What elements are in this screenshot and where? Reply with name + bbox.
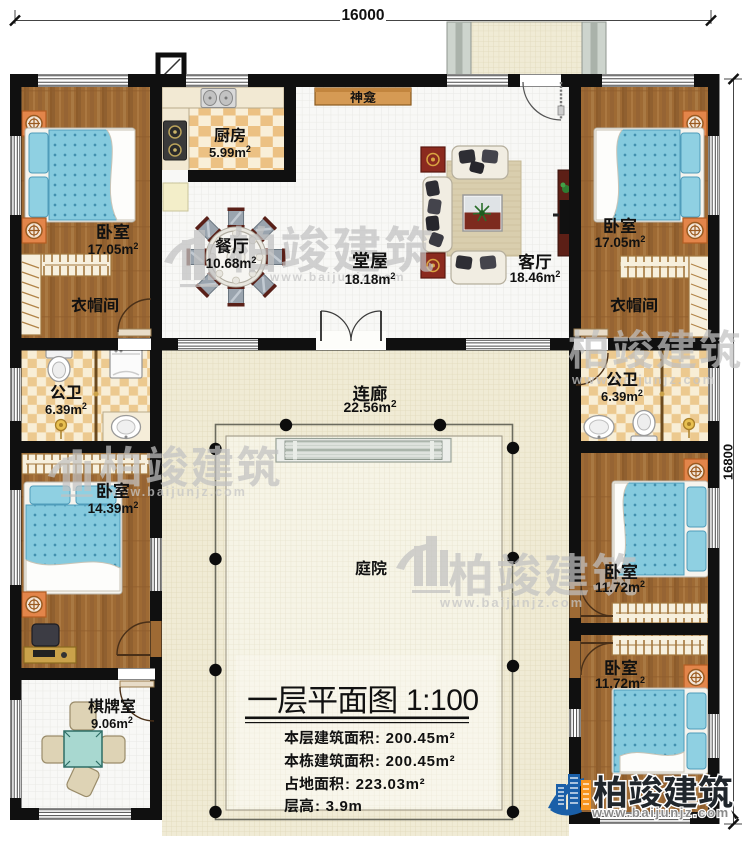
svg-text:17.05m2: 17.05m2 [595, 234, 646, 250]
svg-text:16800: 16800 [721, 444, 736, 480]
svg-text:11.72m2: 11.72m2 [595, 579, 645, 595]
svg-text:9.06m2: 9.06m2 [91, 715, 133, 731]
svg-text:www.baijunjz.com: www.baijunjz.com [439, 595, 584, 610]
svg-text:22.56m2: 22.56m2 [343, 399, 396, 415]
svg-text:16000: 16000 [341, 7, 384, 24]
svg-text:www.baijunjz.com: www.baijunjz.com [571, 372, 716, 387]
svg-text:6.39m2: 6.39m2 [45, 401, 87, 417]
svg-text:14.39m2: 14.39m2 [88, 500, 139, 516]
svg-text:: 3.9m: : 3.9m [315, 798, 363, 815]
svg-text:1:100: 1:100 [406, 684, 479, 717]
svg-text:17.05m2: 17.05m2 [88, 241, 139, 257]
svg-text:18.46m2: 18.46m2 [510, 269, 561, 285]
svg-text:18.18m2: 18.18m2 [345, 271, 396, 287]
svg-text:: 223.03m²: : 223.03m² [345, 776, 425, 793]
svg-text:: 200.45m²: : 200.45m² [375, 730, 455, 747]
svg-text:5.99m2: 5.99m2 [209, 144, 251, 160]
svg-text:6.39m2: 6.39m2 [601, 388, 643, 404]
svg-text:www.baijunjz.com: www.baijunjz.com [591, 805, 730, 820]
svg-text:11.72m2: 11.72m2 [595, 675, 645, 691]
svg-text:10.68m2: 10.68m2 [206, 255, 257, 271]
svg-text:: 200.45m²: : 200.45m² [375, 753, 455, 770]
